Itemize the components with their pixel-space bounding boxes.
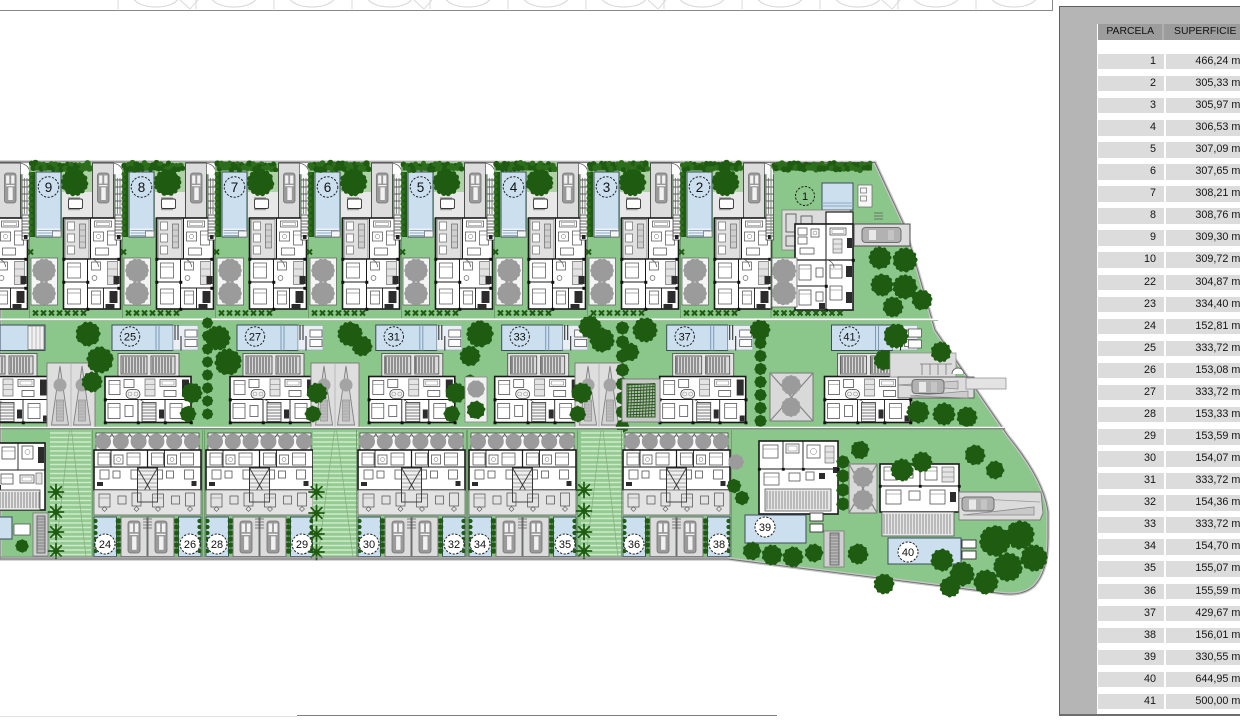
svg-text:41: 41 <box>843 331 855 343</box>
svg-text:25: 25 <box>124 331 136 343</box>
svg-text:31: 31 <box>388 331 400 343</box>
svg-text:39: 39 <box>759 522 771 534</box>
svg-text:5: 5 <box>417 180 425 195</box>
svg-text:6: 6 <box>324 180 332 195</box>
svg-text:34: 34 <box>474 539 486 551</box>
svg-text:8: 8 <box>138 180 146 195</box>
svg-text:7: 7 <box>231 180 239 195</box>
svg-text:35: 35 <box>559 539 571 551</box>
svg-text:26: 26 <box>184 539 196 551</box>
svg-text:38: 38 <box>713 539 725 551</box>
svg-text:30: 30 <box>363 539 375 551</box>
svg-text:1: 1 <box>802 191 808 203</box>
svg-text:32: 32 <box>448 539 460 551</box>
svg-text:28: 28 <box>211 539 223 551</box>
svg-text:2: 2 <box>696 180 704 195</box>
svg-text:37: 37 <box>679 331 691 343</box>
svg-text:24: 24 <box>99 539 111 551</box>
svg-text:36: 36 <box>628 539 640 551</box>
svg-text:9: 9 <box>45 180 53 195</box>
svg-text:29: 29 <box>296 539 308 551</box>
svg-text:27: 27 <box>249 331 261 343</box>
svg-text:4: 4 <box>510 180 518 195</box>
svg-text:40: 40 <box>902 547 914 559</box>
svg-text:3: 3 <box>603 180 611 195</box>
svg-text:33: 33 <box>514 331 526 343</box>
